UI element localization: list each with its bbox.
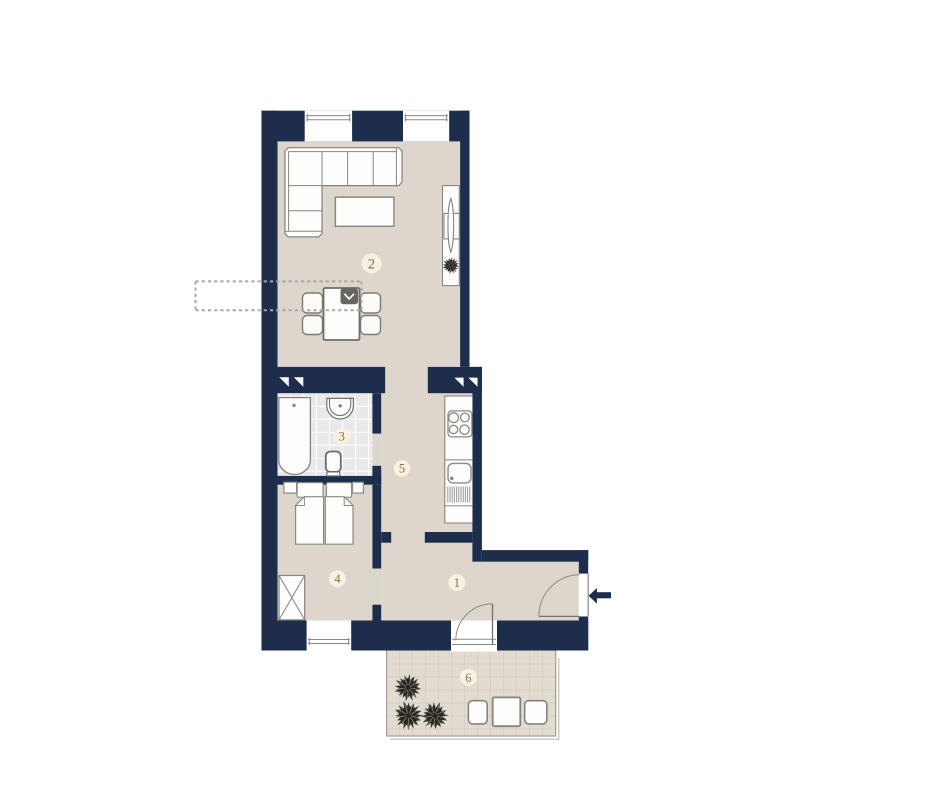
svg-text:5: 5: [399, 462, 405, 476]
svg-text:3: 3: [339, 429, 345, 443]
svg-text:2: 2: [368, 256, 375, 272]
svg-text:4: 4: [334, 572, 341, 586]
svg-text:1: 1: [454, 576, 460, 590]
svg-text:6: 6: [465, 671, 471, 685]
